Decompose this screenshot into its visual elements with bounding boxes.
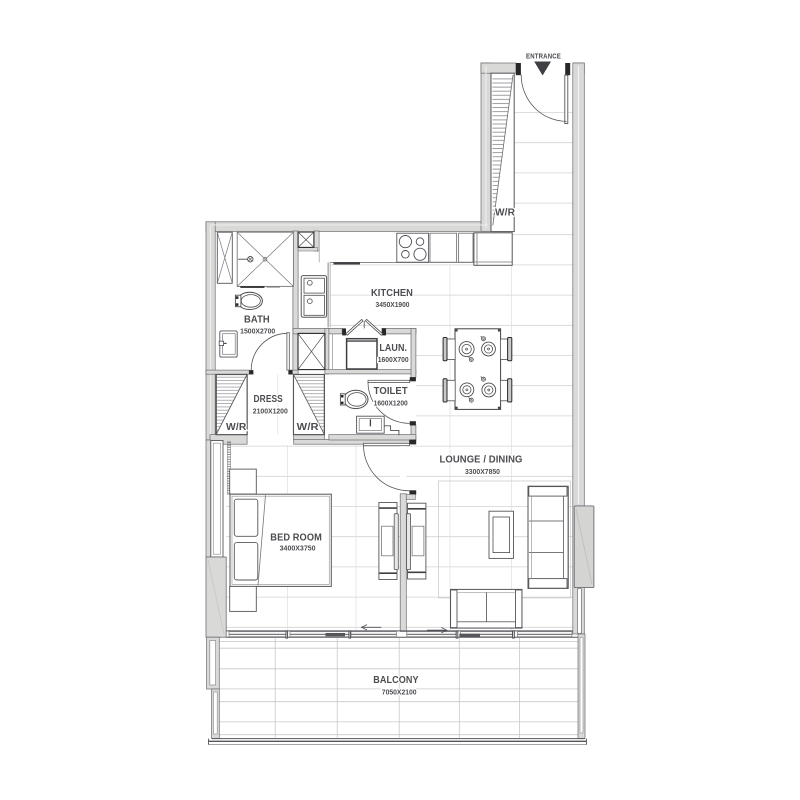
svg-text:7050X2100: 7050X2100 [382, 689, 417, 696]
svg-text:3450X1900: 3450X1900 [376, 302, 410, 309]
svg-text:1600X1200: 1600X1200 [374, 401, 408, 408]
svg-text:W/R: W/R [297, 422, 319, 433]
svg-text:BED ROOM: BED ROOM [270, 532, 322, 543]
svg-text:3300X7850: 3300X7850 [465, 469, 500, 476]
svg-text:DRESS: DRESS [254, 394, 284, 405]
svg-text:2100X1200: 2100X1200 [253, 409, 288, 416]
svg-text:1600X700: 1600X700 [378, 357, 409, 364]
svg-text:BATH: BATH [244, 314, 270, 325]
svg-text:BALCONY: BALCONY [373, 675, 419, 686]
svg-text:LOUNGE / DINING: LOUNGE / DINING [440, 454, 523, 465]
svg-text:TOILET: TOILET [374, 386, 408, 397]
svg-text:W/R: W/R [226, 422, 246, 433]
svg-text:ENTRANCE: ENTRANCE [526, 54, 561, 61]
svg-text:LAUN.: LAUN. [379, 343, 407, 354]
svg-text:W/R: W/R [495, 208, 515, 219]
svg-text:3400X3750: 3400X3750 [280, 545, 316, 552]
svg-text:KITCHEN: KITCHEN [371, 288, 413, 299]
svg-text:1500X2700: 1500X2700 [240, 329, 275, 336]
